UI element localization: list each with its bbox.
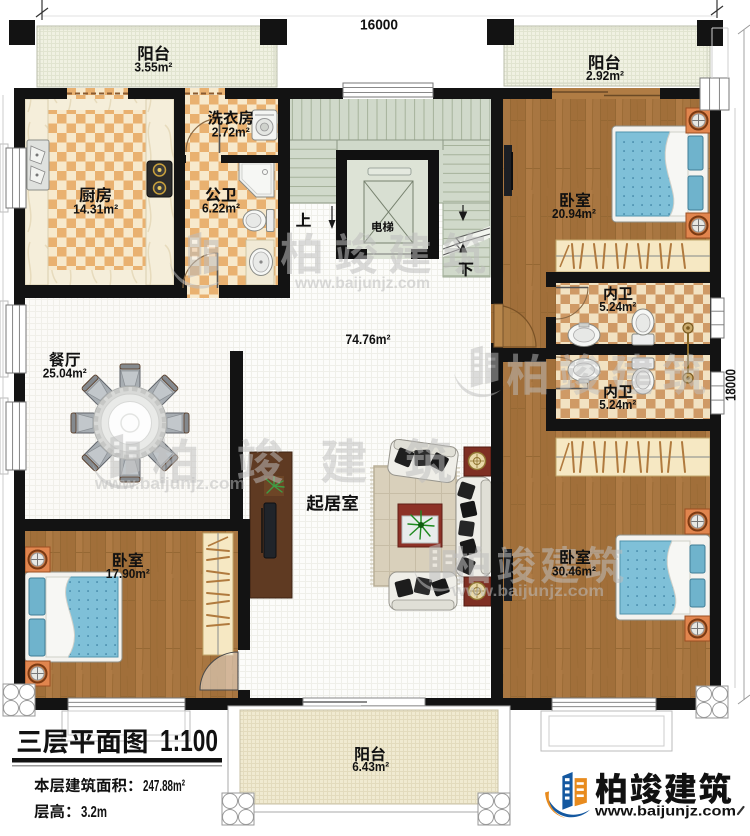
svg-text:3.55m²: 3.55m² [134, 60, 173, 75]
svg-text:1:100: 1:100 [160, 723, 218, 758]
svg-text:www.baijunjz.com: www.baijunjz.com [594, 804, 736, 819]
svg-text:18000: 18000 [723, 369, 740, 401]
svg-text:www.baijunjz.com: www.baijunjz.com [451, 583, 604, 600]
svg-text:5.24m²: 5.24m² [599, 398, 636, 412]
svg-text:2.72m²: 2.72m² [212, 126, 250, 140]
svg-text:www.baijunjz.com: www.baijunjz.com [94, 474, 245, 493]
svg-text:17.90m²: 17.90m² [106, 567, 150, 581]
svg-text:2.92m²: 2.92m² [586, 68, 625, 83]
svg-text:www.baijunjz.com: www.baijunjz.com [294, 275, 430, 292]
svg-text:20.94m²: 20.94m² [552, 207, 596, 221]
svg-text:3.2m: 3.2m [81, 804, 107, 821]
svg-text:5.24m²: 5.24m² [599, 300, 636, 314]
svg-text:6.22m²: 6.22m² [202, 202, 240, 216]
svg-text:14.31m²: 14.31m² [73, 202, 119, 217]
svg-text:6.43m²: 6.43m² [352, 760, 389, 774]
svg-text:30.46m²: 30.46m² [552, 565, 596, 579]
svg-text:74.76m²: 74.76m² [346, 332, 391, 347]
svg-text:16000: 16000 [360, 17, 398, 34]
svg-text:25.04m²: 25.04m² [43, 367, 87, 381]
svg-text:247.88m²: 247.88m² [143, 778, 185, 795]
